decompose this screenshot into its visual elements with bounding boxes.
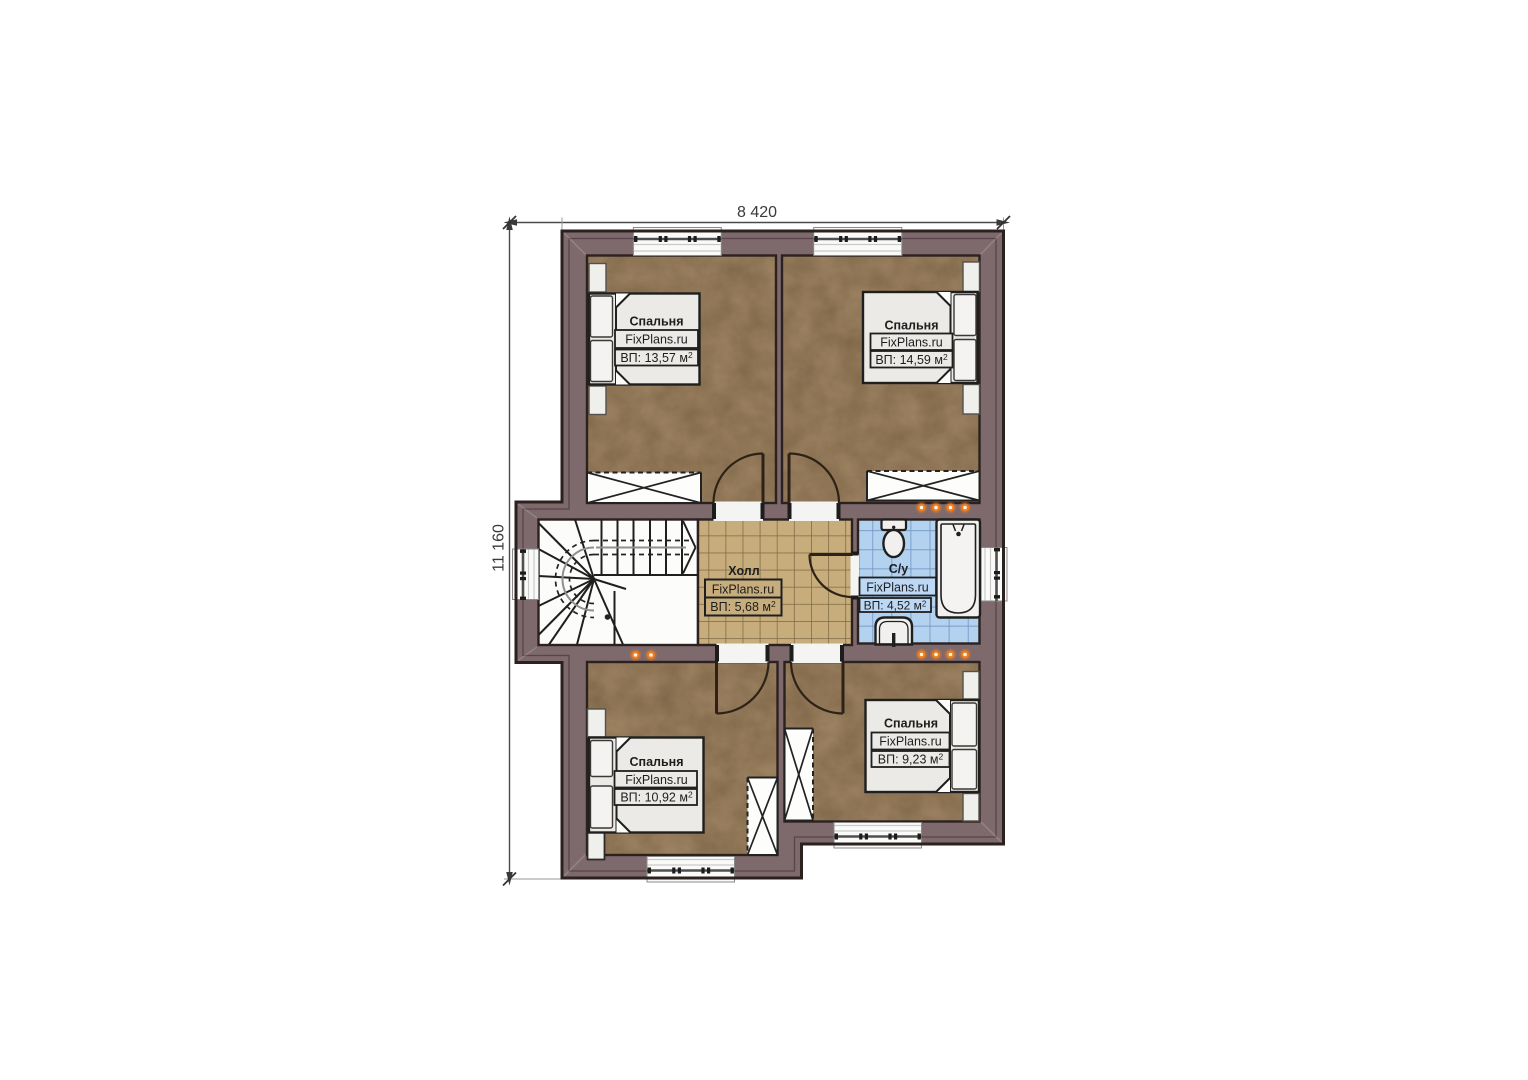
svg-text:Спальня: Спальня	[885, 319, 939, 333]
svg-text:FixPlans.ru: FixPlans.ru	[625, 333, 688, 347]
svg-text:FixPlans.ru: FixPlans.ru	[866, 581, 929, 595]
svg-text:Спальня: Спальня	[630, 755, 684, 769]
svg-text:ВП: 13,57 м2: ВП: 13,57 м2	[620, 350, 693, 365]
svg-text:ВП: 9,23 м2: ВП: 9,23 м2	[878, 752, 944, 767]
svg-text:FixPlans.ru: FixPlans.ru	[880, 336, 943, 350]
svg-text:ВП: 4,52 м2: ВП: 4,52 м2	[864, 599, 927, 613]
svg-text:Холл: Холл	[728, 564, 759, 578]
svg-text:FixPlans.ru: FixPlans.ru	[879, 735, 942, 749]
svg-text:ВП: 14,59 м2: ВП: 14,59 м2	[875, 352, 948, 367]
svg-text:С/у: С/у	[889, 562, 909, 576]
svg-text:Спальня: Спальня	[884, 717, 938, 731]
svg-text:FixPlans.ru: FixPlans.ru	[625, 773, 688, 787]
svg-text:ВП: 5,68 м2: ВП: 5,68 м2	[710, 599, 776, 614]
svg-text:Спальня: Спальня	[630, 315, 684, 329]
svg-text:FixPlans.ru: FixPlans.ru	[712, 583, 775, 597]
svg-text:11 160: 11 160	[491, 524, 508, 572]
svg-text:8 420: 8 420	[737, 204, 777, 221]
svg-text:ВП: 10,92 м2: ВП: 10,92 м2	[620, 790, 693, 805]
